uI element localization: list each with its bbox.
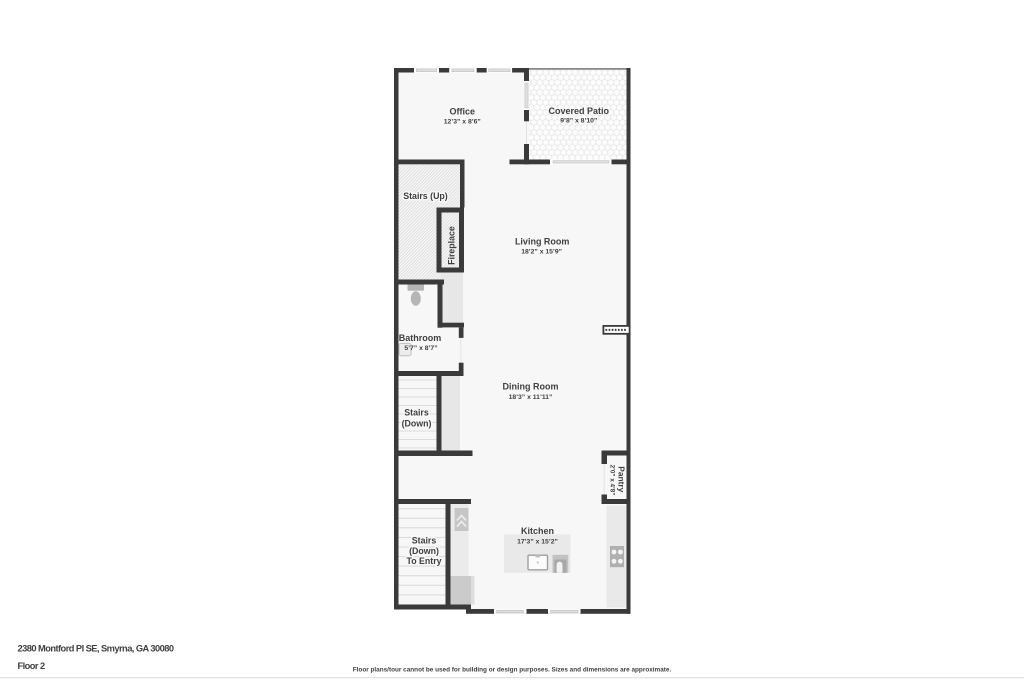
svg-text:(Down): (Down) [402, 418, 432, 428]
svg-text:Kitchen: Kitchen [521, 526, 554, 536]
svg-text:Stairs: Stairs [412, 536, 437, 546]
svg-text:12’3” x 8’6”: 12’3” x 8’6” [444, 119, 481, 126]
svg-text:Dining Room: Dining Room [503, 382, 559, 392]
svg-text:2’0” x 4’8”: 2’0” x 4’8” [609, 465, 616, 496]
svg-text:Bathroom: Bathroom [399, 333, 442, 343]
svg-text:5’7” x 8’7”: 5’7” x 8’7” [404, 345, 437, 352]
svg-text:2380 Montford Pl SE, Smyrna, G: 2380 Montford Pl SE, Smyrna, GA 30080 [18, 643, 174, 653]
svg-text:Stairs: Stairs [404, 408, 429, 418]
svg-text:17’3” x 15’2”: 17’3” x 15’2” [517, 538, 558, 545]
svg-text:18’3” x 11’11”: 18’3” x 11’11” [509, 394, 553, 401]
svg-text:Covered Patio: Covered Patio [549, 106, 610, 116]
svg-text:9’8” x 8’10”: 9’8” x 8’10” [560, 118, 597, 125]
svg-text:To Entry: To Entry [406, 556, 441, 566]
svg-text:Pantry: Pantry [616, 466, 626, 492]
svg-text:(Down): (Down) [409, 546, 439, 556]
svg-text:Office: Office [450, 106, 476, 116]
svg-text:Stairs (Up): Stairs (Up) [403, 191, 448, 201]
svg-text:Floor 2: Floor 2 [18, 661, 46, 671]
svg-text:18’2” x 15’9”: 18’2” x 15’9” [521, 248, 562, 255]
svg-text:Fireplace: Fireplace [446, 226, 456, 265]
svg-text:Floor plans/tour cannot be use: Floor plans/tour cannot be used for buil… [353, 666, 672, 673]
svg-text:Living Room: Living Room [515, 237, 570, 247]
